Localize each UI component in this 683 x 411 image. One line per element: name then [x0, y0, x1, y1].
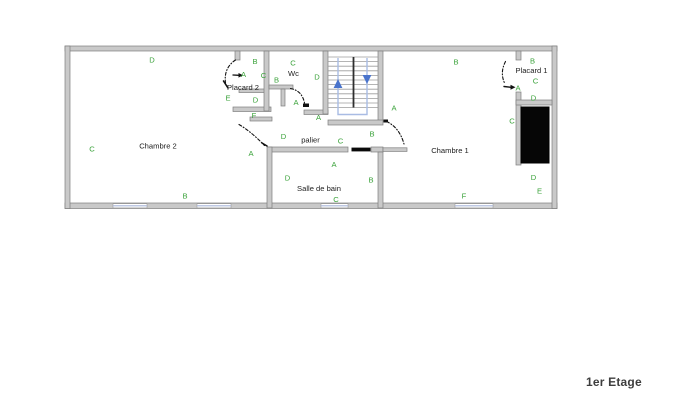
- wall-label-d: D: [285, 174, 291, 183]
- down-arrow-icon: [363, 75, 372, 84]
- staircase: [328, 57, 378, 115]
- window: [455, 204, 493, 208]
- wall-label-d: D: [531, 173, 537, 182]
- wall-label-b: B: [182, 192, 187, 201]
- wall-label-c: C: [533, 77, 539, 86]
- placard1-door-arrow: [504, 87, 511, 88]
- wall-label-b: B: [369, 130, 374, 139]
- room-label-placard-2: Placard 2: [227, 83, 259, 92]
- wall-label-b: B: [252, 57, 257, 66]
- wall-label-f: F: [252, 111, 257, 120]
- stairs-right-wall: [378, 51, 383, 122]
- bathroom-chambre1-wall: [378, 152, 383, 208]
- placard1-left-stub: [516, 51, 521, 60]
- wall-label-a: A: [515, 84, 521, 93]
- wall-labels: DBACEDFCBDAACABDCBABBCADCADBCFDE: [89, 56, 542, 205]
- room-label-placard-1: Placard 1: [515, 66, 547, 75]
- room-label-palier: palier: [301, 136, 320, 145]
- room-label-chambre-2: Chambre 2: [139, 142, 177, 151]
- wall-top: [65, 46, 557, 51]
- stairs-left-wall: [323, 51, 328, 114]
- window: [321, 204, 348, 208]
- chambre1-door-pivot: [384, 120, 389, 123]
- wall-label-d: D: [253, 96, 259, 105]
- wall-label-d: D: [149, 56, 155, 65]
- wall-label-e: E: [537, 187, 542, 196]
- wall-label-b: B: [368, 176, 373, 185]
- wall-label-c: C: [509, 117, 515, 126]
- room-label-chambre-1: Chambre 1: [431, 146, 469, 155]
- wc-door-pivot: [303, 104, 309, 108]
- wall-label-a: A: [248, 149, 254, 158]
- wall-right: [552, 46, 557, 209]
- wall-label-d: D: [281, 132, 287, 141]
- room-labels: Chambre 2Chambre 1Salle de bainpalierWcP…: [139, 66, 547, 193]
- room-label-wc: Wc: [288, 69, 299, 78]
- floor-plan-page: Chambre 2Chambre 1Salle de bainpalierWcP…: [0, 0, 683, 411]
- floor-plan-drawing: Chambre 2Chambre 1Salle de bainpalierWcP…: [0, 0, 683, 411]
- wall-label-b: B: [453, 58, 458, 67]
- bathroom-north-wall-left: [268, 147, 348, 152]
- wall-label-c: C: [261, 71, 267, 80]
- wall-left: [65, 46, 70, 209]
- wall-label-b: B: [530, 57, 535, 66]
- bathroom-north-wall-right: [371, 147, 383, 152]
- interior-walls: [233, 51, 552, 208]
- placard2-wc-wall: [264, 51, 269, 111]
- wall-label-d: D: [314, 73, 320, 82]
- chambre2-door-arc: [239, 125, 265, 146]
- wall-label-e: E: [225, 94, 230, 103]
- room-label-salle-de-bain: Salle de bain: [297, 184, 341, 193]
- wall-label-c: C: [290, 59, 296, 68]
- duct-block: [521, 107, 549, 163]
- chambre1-door-leaf: [383, 148, 407, 152]
- below-stairs-wall: [328, 120, 383, 125]
- floor-title: 1er Etage: [586, 375, 642, 389]
- placard2-left-stub: [235, 51, 240, 60]
- wall-label-a: A: [391, 104, 397, 113]
- wall-label-d: D: [531, 94, 537, 103]
- wall-label-a: A: [241, 70, 247, 79]
- window: [197, 204, 231, 208]
- wc-door-stub: [281, 89, 285, 106]
- placard1-door-arc: [502, 62, 505, 85]
- wall-label-b: B: [274, 76, 279, 85]
- bathroom-door-leaf: [352, 148, 371, 152]
- wall-label-f: F: [462, 192, 467, 201]
- wc-south-wall: [269, 85, 293, 89]
- window: [113, 204, 147, 208]
- wall-label-c: C: [333, 195, 339, 204]
- chambre2-bathroom-wall: [267, 147, 272, 208]
- wall-label-a: A: [293, 98, 299, 107]
- wall-label-c: C: [338, 137, 344, 146]
- wall-label-a: A: [331, 160, 337, 169]
- placard2-door-arc: [225, 60, 235, 83]
- wall-label-c: C: [89, 145, 95, 154]
- chambre1-door-arc: [387, 122, 405, 145]
